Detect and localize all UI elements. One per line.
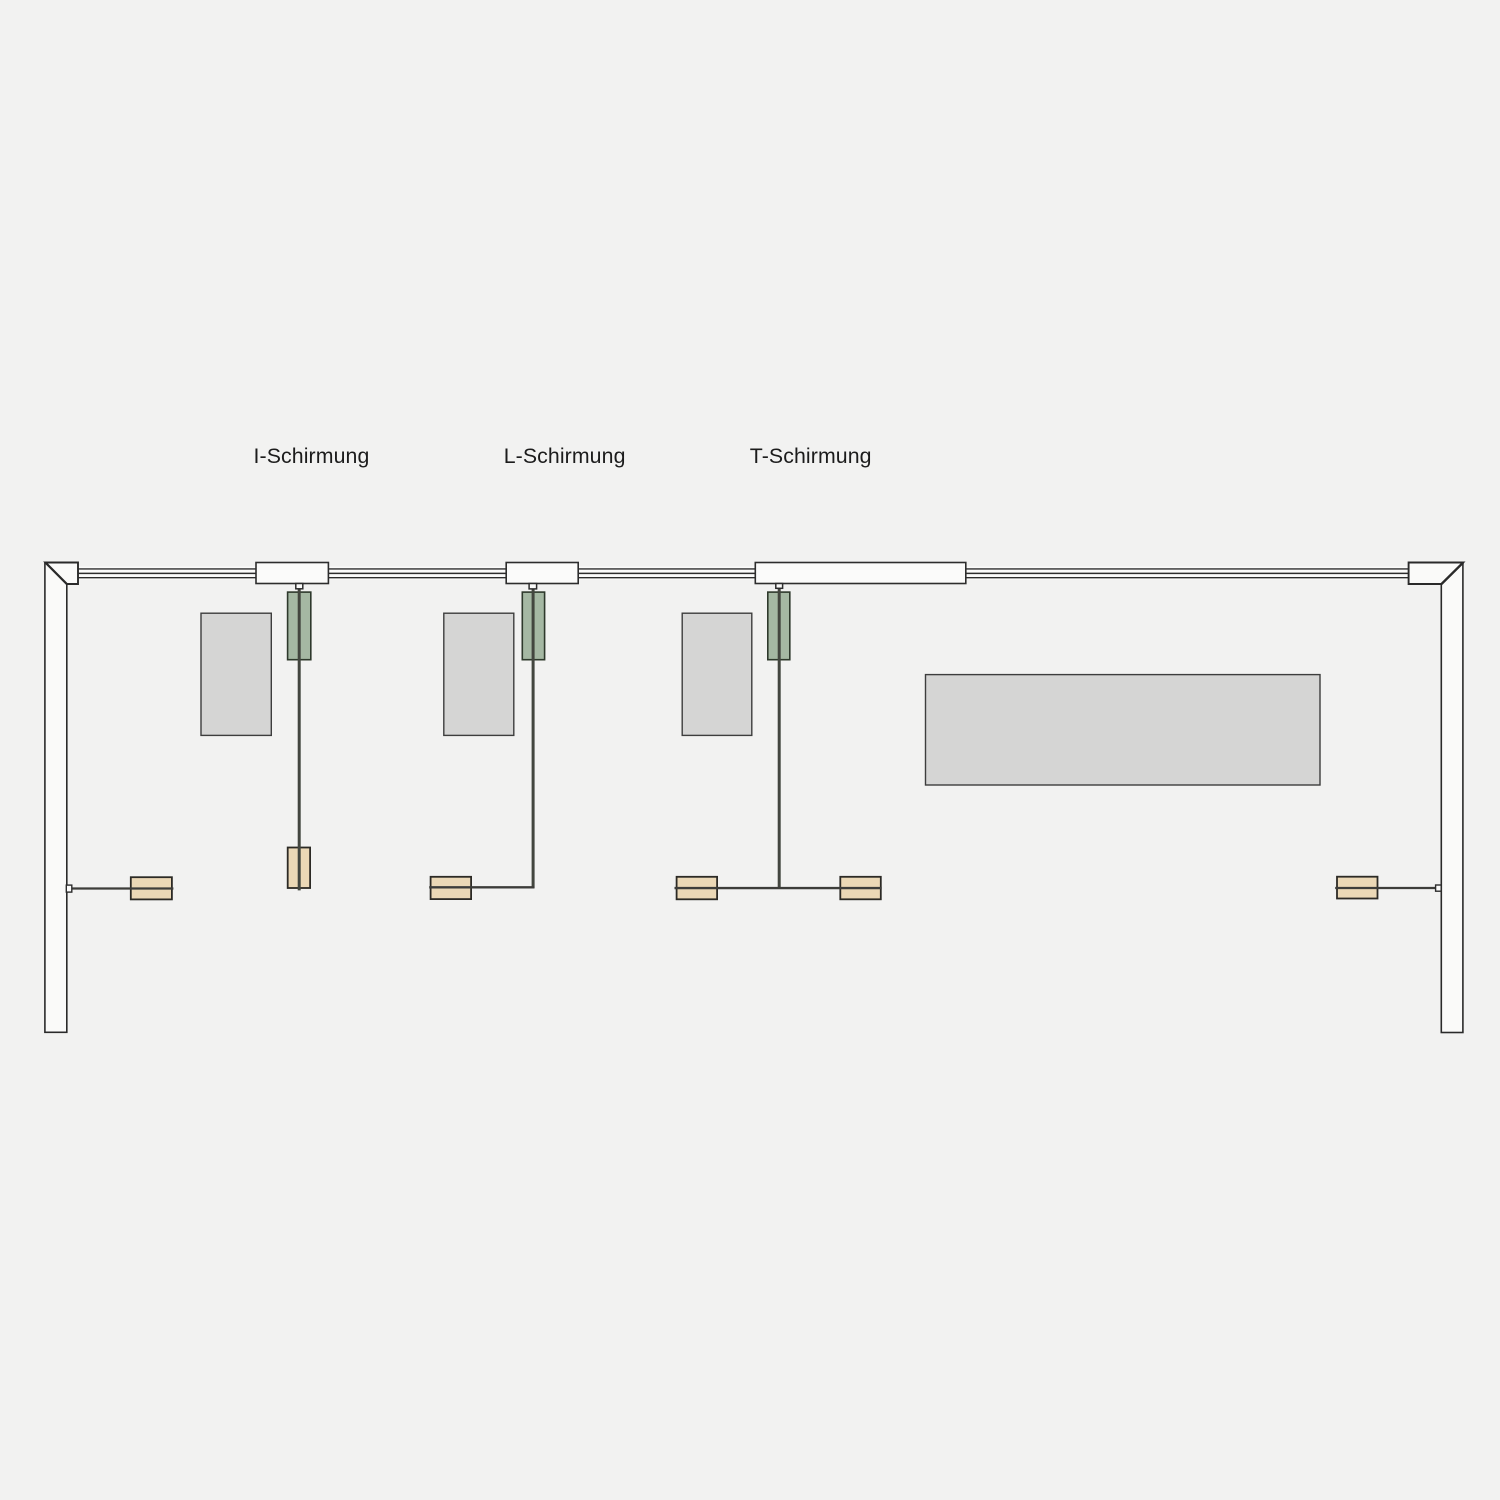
svg-text:I-Schirmung: I-Schirmung [254, 444, 370, 468]
svg-text:T-Schirmung: T-Schirmung [750, 444, 872, 468]
svg-text:L-Schirmung: L-Schirmung [504, 444, 626, 468]
